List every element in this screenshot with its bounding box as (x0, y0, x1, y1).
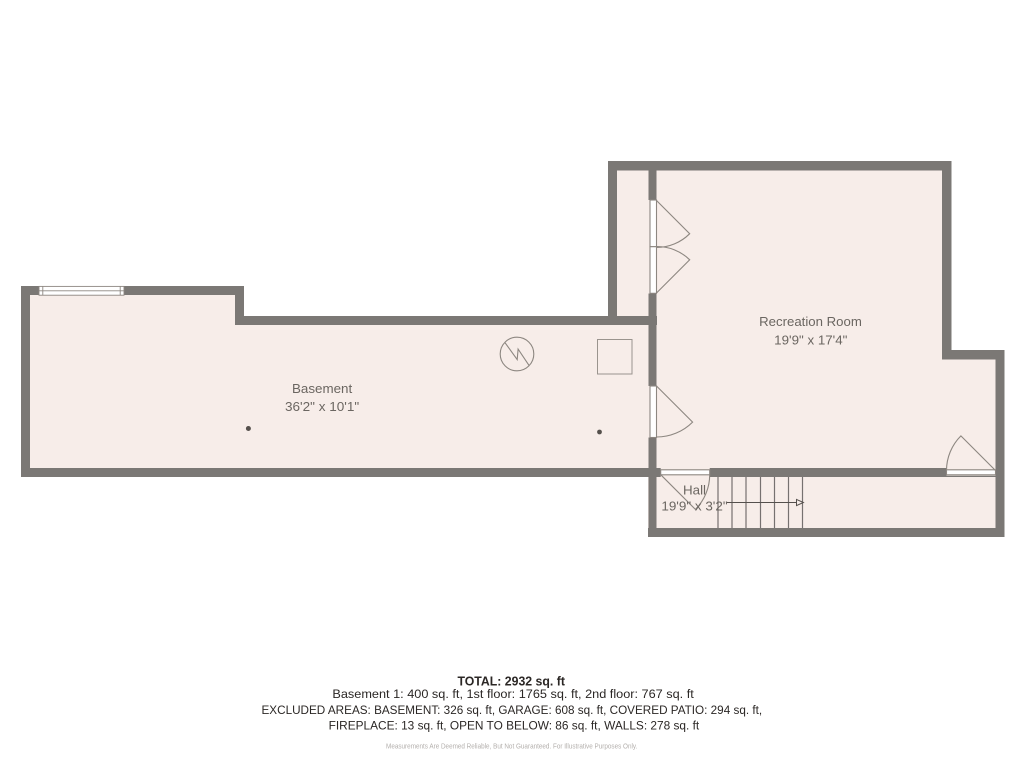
svg-text:Basement: Basement (292, 381, 353, 396)
svg-text:Recreation Room: Recreation Room (759, 314, 862, 329)
svg-text:36'2" x 10'1": 36'2" x 10'1" (285, 399, 360, 414)
svg-text:Measurements Are Deemed Reliab: Measurements Are Deemed Reliable, But No… (386, 741, 637, 750)
svg-text:19'9" x 17'4": 19'9" x 17'4" (774, 333, 848, 348)
svg-text:FIREPLACE: 13 sq. ft, OPEN TO: FIREPLACE: 13 sq. ft, OPEN TO BELOW: 86 … (329, 719, 700, 733)
svg-text:Hall: Hall (683, 482, 706, 497)
svg-text:19'9" x 3'2": 19'9" x 3'2" (661, 498, 728, 513)
svg-text:EXCLUDED AREAS: BASEMENT: 326: EXCLUDED AREAS: BASEMENT: 326 sq. ft, GA… (262, 703, 763, 717)
svg-text:Basement 1: 400 sq. ft, 1st fl: Basement 1: 400 sq. ft, 1st floor: 1765 … (332, 687, 694, 701)
